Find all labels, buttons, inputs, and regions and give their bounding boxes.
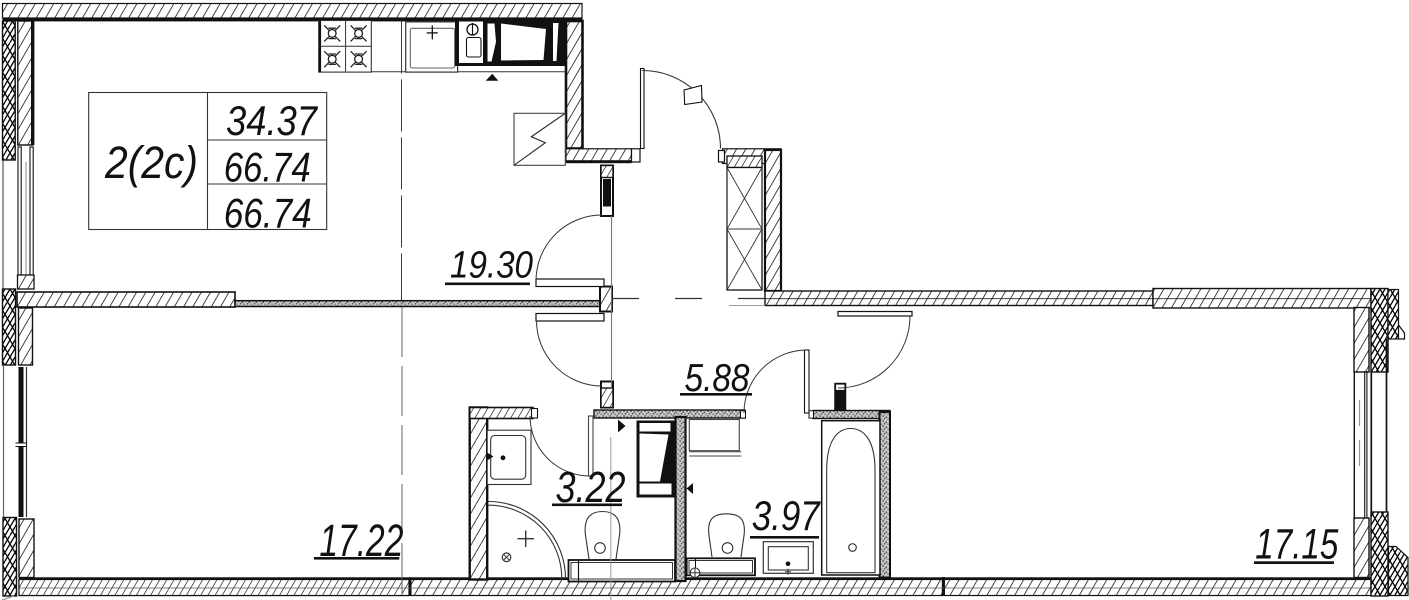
svg-text:66.74: 66.74 (224, 144, 311, 191)
svg-text:2(2c): 2(2c) (104, 137, 198, 188)
svg-text:19.30: 19.30 (450, 245, 533, 287)
svg-text:34.37: 34.37 (226, 97, 319, 144)
svg-text:66.74: 66.74 (224, 190, 312, 237)
svg-text:3.97: 3.97 (752, 492, 821, 539)
